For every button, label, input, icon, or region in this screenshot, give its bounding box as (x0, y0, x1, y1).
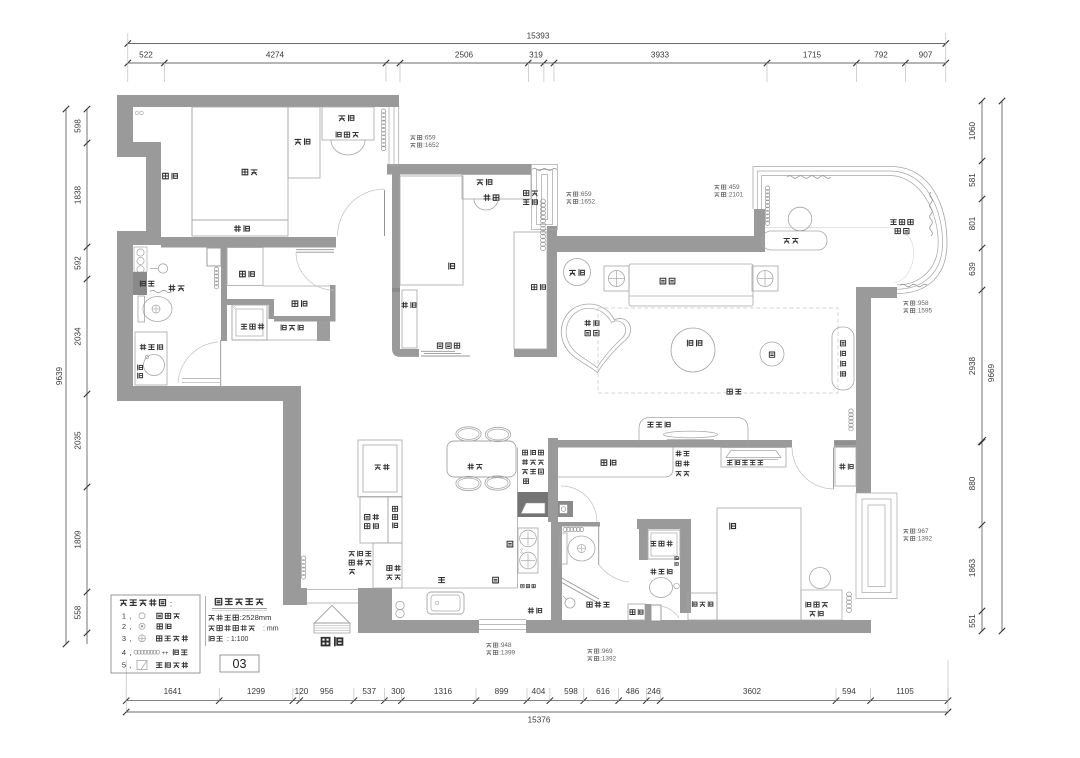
svg-text:9639: 9639 (55, 366, 64, 385)
svg-text::969: :969 (600, 648, 613, 655)
svg-text:1715: 1715 (803, 51, 822, 60)
svg-text:319: 319 (529, 51, 543, 60)
svg-text:,: , (129, 648, 131, 657)
svg-text:956: 956 (320, 687, 334, 696)
svg-text:594: 594 (842, 687, 856, 696)
svg-text:2506: 2506 (455, 51, 474, 60)
svg-text:15393: 15393 (527, 32, 550, 41)
svg-text:4: 4 (122, 648, 126, 657)
svg-text:598: 598 (564, 687, 578, 696)
svg-text:1299: 1299 (247, 687, 266, 696)
svg-text:1863: 1863 (968, 558, 977, 577)
svg-text:880: 880 (968, 476, 977, 490)
svg-text:++: ++ (161, 651, 169, 657)
svg-text:792: 792 (874, 51, 888, 60)
svg-text:1: 1 (122, 612, 126, 621)
svg-text::659: :659 (423, 135, 436, 142)
svg-text:03: 03 (233, 657, 247, 671)
svg-text:300: 300 (391, 687, 405, 696)
svg-text:899: 899 (495, 687, 509, 696)
svg-text:246: 246 (647, 687, 661, 696)
svg-text::1399: :1399 (499, 650, 515, 657)
svg-text:639: 639 (968, 262, 977, 276)
svg-text:1060: 1060 (968, 121, 977, 140)
svg-text::: : (170, 599, 172, 609)
svg-text:1809: 1809 (74, 530, 83, 549)
svg-text:2: 2 (122, 622, 126, 631)
svg-text:1838: 1838 (74, 185, 83, 204)
svg-text:1105: 1105 (896, 687, 914, 696)
svg-text:5: 5 (122, 661, 126, 670)
svg-text::1392: :1392 (600, 656, 616, 663)
svg-text:2938: 2938 (968, 356, 977, 375)
svg-text::2101: :2101 (727, 192, 743, 199)
svg-text::958: :958 (916, 300, 929, 307)
svg-text:3602: 3602 (743, 687, 762, 696)
svg-text:2035: 2035 (74, 431, 83, 450)
svg-text:1641: 1641 (164, 687, 183, 696)
svg-text::1392: :1392 (916, 536, 932, 543)
svg-text::948: :948 (499, 642, 512, 649)
svg-text:592: 592 (74, 256, 83, 270)
svg-text:1316: 1316 (434, 687, 453, 696)
svg-text:801: 801 (968, 216, 977, 230)
svg-text::967: :967 (916, 528, 929, 535)
svg-text:2034: 2034 (74, 327, 83, 346)
svg-text:558: 558 (74, 605, 83, 619)
svg-text:581: 581 (968, 173, 977, 187)
svg-text:486: 486 (626, 687, 640, 696)
svg-text:537: 537 (362, 687, 376, 696)
svg-text:9669: 9669 (987, 363, 996, 382)
svg-text::1652: :1652 (579, 199, 595, 206)
svg-text::1595: :1595 (916, 308, 932, 315)
svg-text:120: 120 (295, 687, 309, 696)
svg-text:522: 522 (139, 51, 153, 60)
svg-text:: mm: : mm (263, 626, 279, 633)
svg-text:3: 3 (122, 634, 126, 643)
svg-text:551: 551 (968, 614, 977, 628)
svg-text:,: , (129, 622, 131, 631)
svg-text:,: , (129, 634, 131, 643)
svg-text:907: 907 (919, 51, 933, 60)
svg-text:3933: 3933 (651, 51, 670, 60)
svg-text::2528mm: :2528mm (240, 613, 272, 622)
svg-text:404: 404 (532, 687, 546, 696)
svg-text:4274: 4274 (266, 51, 285, 60)
svg-text:: 1:100: : 1:100 (227, 636, 249, 643)
svg-text:15376: 15376 (528, 716, 551, 725)
svg-text:598: 598 (74, 119, 83, 133)
svg-text:616: 616 (596, 687, 610, 696)
svg-text:,: , (129, 612, 131, 621)
svg-text::659: :659 (579, 191, 592, 198)
svg-text::459: :459 (727, 184, 740, 191)
svg-text::1652: :1652 (423, 142, 439, 149)
svg-text:,: , (129, 661, 131, 670)
